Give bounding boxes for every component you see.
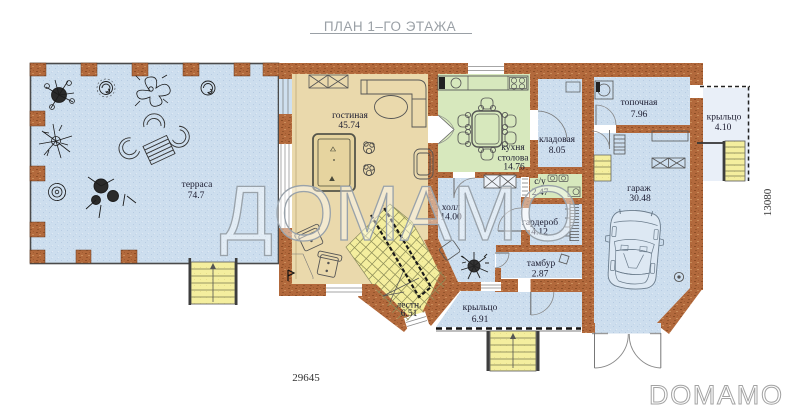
svg-text:крыльцо: крыльцо — [707, 113, 742, 123]
svg-text:гараж: гараж — [627, 184, 651, 194]
svg-text:кладовая: кладовая — [539, 135, 576, 145]
svg-text:45.74: 45.74 — [338, 121, 360, 131]
svg-text:13080: 13080 — [762, 188, 774, 216]
svg-text:4.10: 4.10 — [715, 123, 732, 133]
svg-text:8.05: 8.05 — [549, 146, 566, 156]
svg-text:гостиная: гостиная — [332, 111, 368, 121]
svg-text:6.51: 6.51 — [401, 309, 418, 319]
svg-text:DOMAMO: DOMAMO — [649, 380, 784, 410]
svg-text:74.7: 74.7 — [188, 191, 205, 201]
svg-text:топочная: топочная — [621, 98, 658, 108]
svg-text:29645: 29645 — [292, 372, 320, 384]
svg-text:30.48: 30.48 — [629, 194, 651, 204]
svg-text:2.87: 2.87 — [532, 270, 549, 280]
svg-text:терраса: терраса — [182, 180, 213, 190]
svg-text:кухня: кухня — [501, 143, 525, 153]
svg-text:крыльцо: крыльцо — [463, 303, 498, 313]
svg-text:тамбур: тамбур — [527, 258, 556, 269]
svg-text:ПЛАН 1–ГО ЭТАЖА: ПЛАН 1–ГО ЭТАЖА — [324, 19, 456, 34]
svg-text:6.91: 6.91 — [472, 315, 489, 325]
svg-text:ДОМАМО: ДОМАМО — [220, 169, 579, 257]
svg-text:7.96: 7.96 — [631, 110, 648, 120]
